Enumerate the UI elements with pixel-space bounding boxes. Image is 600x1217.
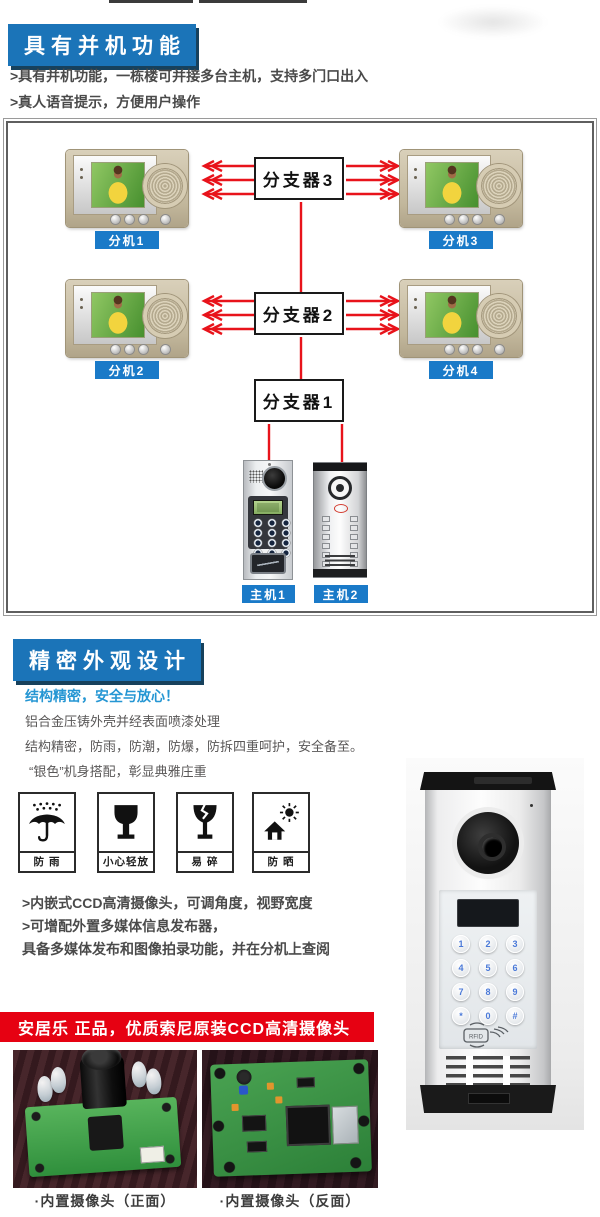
keypad-key: 8 (479, 983, 497, 1001)
design-bullet: >内嵌式CCD高清摄像头，可调角度，视野宽度 (22, 893, 313, 913)
feature-bullet: >真人语音提示，方便用户操作 (10, 92, 200, 112)
keypad: 1 2 3 4 5 6 7 8 9 * 0 # (452, 935, 524, 1025)
indoor-monitor-1 (66, 150, 188, 227)
monitor-speaker (143, 164, 187, 208)
design-paragraph: 铝合金压铸外壳并经表面喷漆处理 (25, 711, 220, 730)
monitor-photo (92, 293, 144, 337)
monitor-label-2: 分机2 (95, 361, 159, 379)
top-cap (313, 463, 367, 471)
splitter-box-1: 分支器1 (254, 379, 344, 422)
keypad-key: 9 (506, 983, 524, 1001)
door-station-label-2: 主机2 (314, 585, 368, 603)
camera-lens (262, 466, 287, 491)
care-icon-box-fragile: 易 碎 (176, 792, 234, 873)
indicator-dot (414, 306, 417, 309)
care-icon-label: 易 碎 (178, 851, 232, 871)
keypad-key: 4 (452, 959, 470, 977)
keypad-panel: 1 2 3 4 5 6 7 8 9 * 0 # (439, 890, 537, 1049)
section-banner-parallel: 具有并机功能 (8, 24, 196, 66)
bottom-cap (313, 569, 367, 577)
image-crop-artifact (199, 0, 307, 3)
monitor-label-3: 分机3 (429, 231, 493, 249)
monitor-buttons (106, 215, 170, 224)
monitor-photo (92, 163, 144, 207)
speaker-grid (249, 470, 263, 483)
card-reader (250, 553, 286, 574)
keypad-key: 5 (479, 959, 497, 977)
monitor-buttons (440, 215, 504, 224)
door-station-label-1: 主机1 (242, 585, 295, 603)
care-icon-label: 防 晒 (254, 851, 308, 871)
door-station-1 (244, 461, 292, 579)
feature-bullet: >具有并机功能，一栋楼可并接多台主机，支持多门口出入 (10, 66, 368, 86)
ir-led (131, 1061, 148, 1088)
monitor-speaker (477, 164, 521, 208)
image-crop-artifact (109, 0, 193, 3)
indicator-dot (414, 176, 417, 179)
indicator-dot (80, 168, 83, 171)
keypad (254, 519, 290, 557)
ir-led (145, 1068, 162, 1095)
care-icon-box-rain: 防 雨 (18, 792, 76, 873)
handle-with-care-icon (99, 794, 153, 853)
door-station-product-photo: 1 2 3 4 5 6 7 8 9 * 0 # (420, 772, 556, 1113)
keypad-key: 6 (506, 959, 524, 977)
camera-front-photo (13, 1050, 197, 1188)
keypad-key: 3 (506, 935, 524, 953)
rfid-label: RFID (469, 1035, 484, 1041)
capacitor (231, 1104, 238, 1111)
camera-pcb (25, 1097, 182, 1177)
unit-body: 1 2 3 4 5 6 7 8 9 * 0 # (425, 790, 551, 1085)
main-chip (286, 1105, 331, 1147)
keypad-key: 7 (452, 983, 470, 1001)
indicator-dot (80, 298, 83, 301)
lens-mount (88, 1115, 124, 1151)
design-bullet: 具备多媒体发布和图像拍录功能，并在分机上查阅 (22, 939, 330, 959)
lcd-display (457, 899, 519, 927)
keypad-key: 1 (452, 935, 470, 953)
topology-diagram: 分机1 分机3 分机2 分机4 分支器3 分支器2 分支器1 (3, 118, 597, 616)
keypad-panel (248, 496, 288, 549)
design-paragraph: 结构精密，防雨，防潮，防爆，防拆四重呵护，安全备至。 (25, 736, 363, 755)
speaker-grille (325, 555, 355, 568)
blue-component (239, 1085, 248, 1094)
indicator-dot (80, 176, 83, 179)
design-bullet: >可增配外置多媒体信息发布器， (22, 916, 226, 936)
rfid-swipe-icon: RFID (460, 1022, 516, 1053)
photo-caption-front: ·内置摄像头（正面） (13, 1191, 197, 1211)
care-icon-box-sun: 防 晒 (252, 792, 310, 873)
brand-logo (334, 504, 348, 513)
inductor (236, 1069, 252, 1085)
indoor-monitor-4 (400, 280, 522, 357)
fragile-icon (178, 794, 232, 853)
section-banner-design: 精密外观设计 (13, 639, 201, 681)
monitor-photo (426, 293, 478, 337)
care-icon-box-handle: 小心轻放 (97, 792, 155, 873)
ir-led (50, 1066, 67, 1093)
product-detail-page: 具有并机功能 >具有并机功能，一栋楼可并接多台主机，支持多门口出入 >真人语音提… (0, 0, 600, 1217)
door-station-2 (314, 463, 366, 577)
indoor-monitor-3 (400, 150, 522, 227)
bottom-cap (420, 1085, 556, 1113)
rain-protection-icon (20, 794, 74, 853)
monitor-buttons (106, 345, 170, 354)
watermark-smudge (438, 6, 548, 38)
top-cap (420, 772, 556, 790)
care-icon-label: 小心轻放 (99, 851, 153, 871)
splitter-box-3: 分支器3 (254, 157, 344, 200)
ic-chip (242, 1115, 267, 1132)
indicator-dot (414, 168, 417, 171)
capacitor (267, 1083, 274, 1090)
metal-shield (332, 1106, 359, 1145)
ic-chip (247, 1141, 267, 1153)
indoor-monitor-2 (66, 280, 188, 357)
monitor-buttons (440, 345, 504, 354)
capacitor (275, 1096, 282, 1103)
design-paragraph: “银色”机身搭配，彰显典雅庄重 (29, 761, 207, 780)
indicator-dot (414, 298, 417, 301)
camera-pcb-back (210, 1059, 372, 1176)
monitor-label-1: 分机1 (95, 231, 159, 249)
care-icon-label: 防 雨 (20, 851, 74, 871)
splitter-box-2: 分支器2 (254, 292, 344, 335)
wire-connector (140, 1146, 165, 1164)
monitor-label-4: 分机4 (429, 361, 493, 379)
sun-protection-icon (254, 794, 308, 853)
mic-pinhole (530, 804, 533, 807)
lcd-display (253, 500, 283, 515)
section-banner-camera: 安居乐 正品，优质索尼原装CCD高清摄像头 (0, 1012, 374, 1042)
ic-chip (297, 1077, 315, 1088)
monitor-speaker (143, 294, 187, 338)
indicator-dot (80, 306, 83, 309)
keypad-key: 2 (479, 935, 497, 953)
monitor-speaker (477, 294, 521, 338)
monitor-photo (426, 163, 478, 207)
camera-back-photo (202, 1050, 378, 1188)
camera-lens (328, 476, 352, 500)
camera-lens (457, 812, 519, 874)
design-subtitle: 结构精密，安全与放心！ (25, 686, 179, 706)
photo-caption-back: ·内置摄像头（反面） (202, 1191, 378, 1211)
